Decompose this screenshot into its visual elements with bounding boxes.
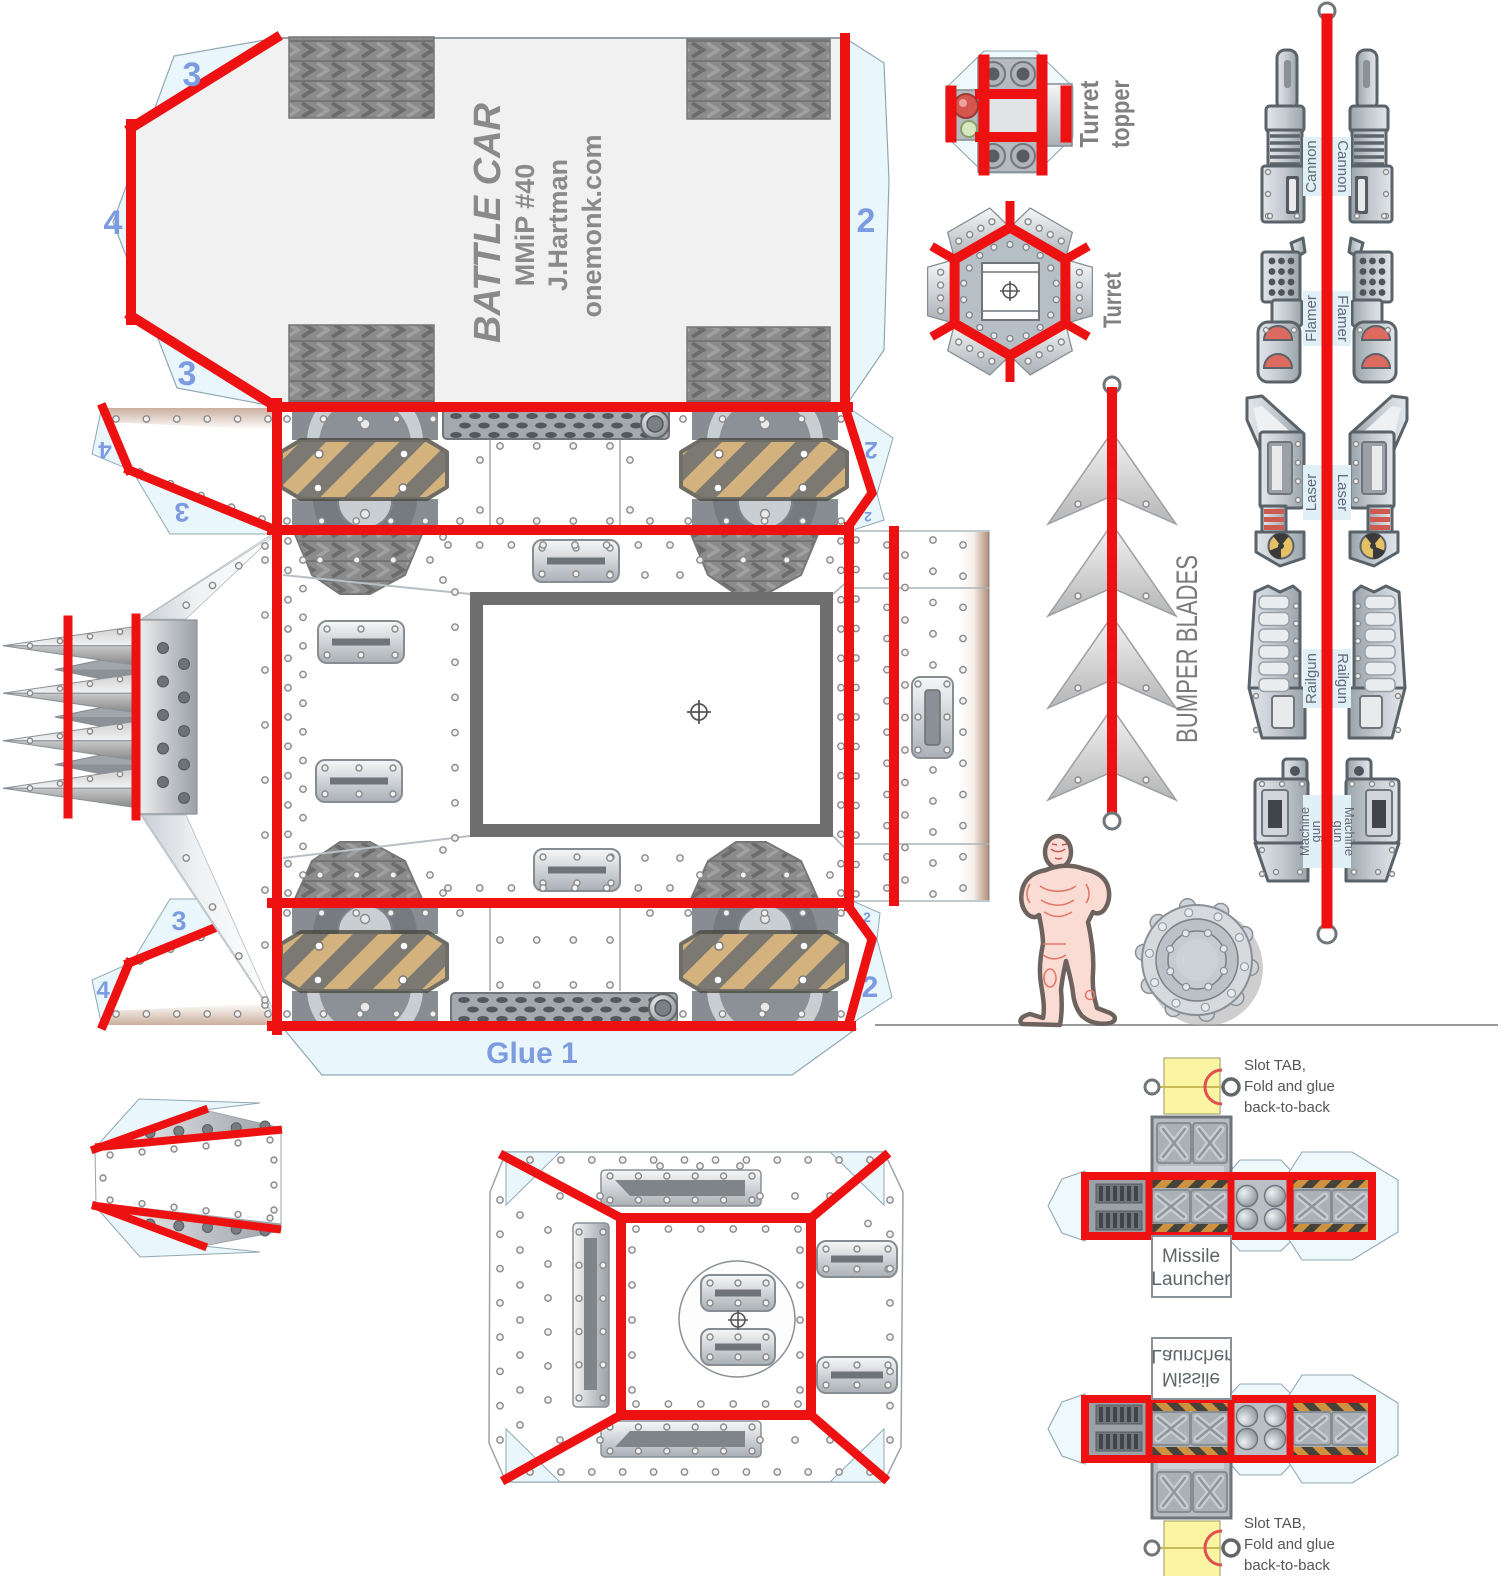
svg-text:Fold and glue: Fold and glue bbox=[1244, 1078, 1335, 1095]
svg-text:3: 3 bbox=[183, 56, 202, 94]
svg-text:Glue 1: Glue 1 bbox=[486, 1037, 578, 1070]
svg-text:gun: gun bbox=[1308, 821, 1323, 843]
svg-text:Slot TAB,: Slot TAB, bbox=[1244, 1515, 1306, 1532]
svg-text:Cannon: Cannon bbox=[1334, 140, 1351, 193]
svg-text:Missile: Missile bbox=[1162, 1246, 1220, 1267]
svg-text:MMiP #40: MMiP #40 bbox=[510, 164, 540, 287]
svg-text:Turret: Turret bbox=[1074, 80, 1104, 147]
svg-text:Flamer: Flamer bbox=[1303, 295, 1320, 342]
svg-text:gun: gun bbox=[1331, 821, 1346, 843]
svg-text:J.Hartman: J.Hartman bbox=[543, 159, 573, 291]
svg-text:Laser: Laser bbox=[1334, 474, 1351, 512]
svg-text:topper: topper bbox=[1105, 80, 1135, 148]
svg-text:Flamer: Flamer bbox=[1334, 295, 1351, 342]
svg-text:Cannon: Cannon bbox=[1303, 140, 1320, 193]
svg-text:Turret: Turret bbox=[1099, 271, 1127, 328]
svg-text:onemonk.com: onemonk.com bbox=[577, 134, 607, 317]
svg-text:Laser: Laser bbox=[1303, 474, 1320, 512]
svg-text:Railgun: Railgun bbox=[1334, 653, 1351, 704]
svg-text:back-to-back: back-to-back bbox=[1244, 1557, 1330, 1574]
svg-text:3: 3 bbox=[174, 497, 189, 527]
svg-text:2: 2 bbox=[864, 509, 872, 525]
svg-text:2: 2 bbox=[857, 202, 876, 240]
svg-text:BATTLE CAR: BATTLE CAR bbox=[467, 102, 509, 342]
svg-text:2: 2 bbox=[864, 436, 877, 463]
svg-text:BUMPER BLADES: BUMPER BLADES bbox=[1171, 555, 1204, 743]
svg-text:3: 3 bbox=[171, 906, 186, 936]
svg-text:3: 3 bbox=[178, 355, 197, 393]
svg-text:Railgun: Railgun bbox=[1303, 653, 1320, 704]
svg-text:back-to-back: back-to-back bbox=[1244, 1099, 1330, 1116]
svg-text:4: 4 bbox=[98, 436, 112, 463]
svg-text:Slot TAB,: Slot TAB, bbox=[1244, 1057, 1306, 1074]
svg-text:Fold and glue: Fold and glue bbox=[1244, 1536, 1335, 1553]
svg-text:Launcher: Launcher bbox=[1151, 1269, 1231, 1290]
svg-text:4: 4 bbox=[96, 977, 110, 1004]
svg-text:4: 4 bbox=[104, 204, 123, 242]
